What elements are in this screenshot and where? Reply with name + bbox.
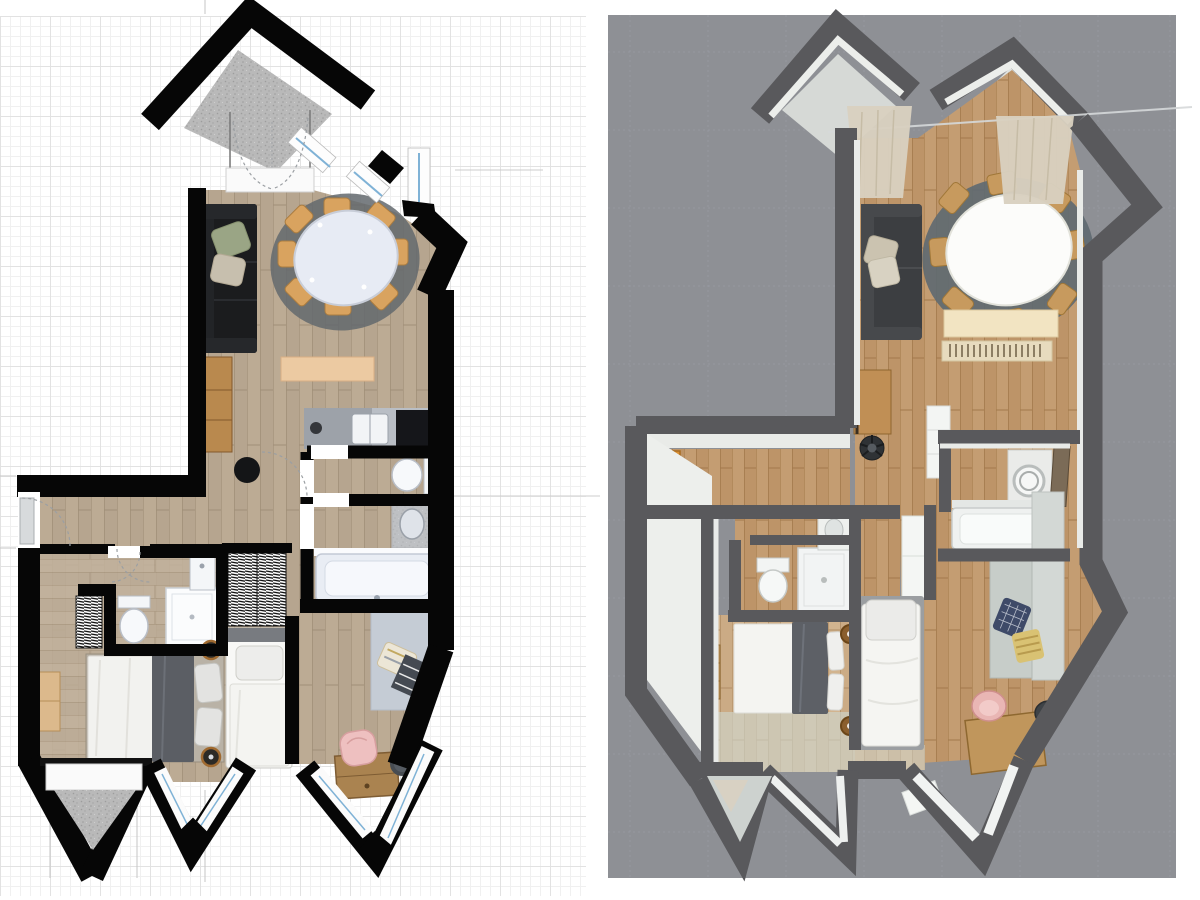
- entry-door-leaf: [20, 498, 34, 544]
- ensuite-toilet-tank: [118, 596, 150, 608]
- sofa-3d-armrest: [861, 327, 922, 340]
- single-bed-pillow: [236, 646, 283, 680]
- dining-chair: [278, 241, 296, 267]
- sideboard-wood: [202, 357, 232, 452]
- floor-plan-2d-drawing: [0, 0, 600, 900]
- bathtub-inner: [325, 561, 429, 596]
- table-setting: [310, 278, 315, 283]
- bath-sink: [400, 509, 424, 539]
- shower-drain: [190, 615, 195, 620]
- toilet-bowl: [392, 459, 422, 491]
- single-bed-headboard: [226, 628, 292, 642]
- double-bed-3d-duvet: [734, 624, 800, 713]
- bar-stool-seat: [868, 444, 877, 453]
- floor-plan-stage: [0, 0, 1200, 900]
- desk-chair-pink: [338, 728, 378, 768]
- table-setting: [362, 285, 367, 290]
- bed-pillow: [194, 707, 222, 747]
- door-gap: [300, 504, 314, 549]
- sofa-pillow-beige: [209, 253, 246, 287]
- desk-chair-pink-inner: [979, 700, 999, 716]
- door-gap: [311, 445, 348, 459]
- bed-pillow: [194, 663, 223, 703]
- ensuite-faucet: [200, 564, 205, 569]
- wall-bed2-office: [285, 616, 299, 764]
- sofa-3d-armrest: [861, 204, 922, 217]
- ensuite-sink: [190, 556, 215, 590]
- table-setting: [368, 230, 373, 235]
- sofa-armrest-top: [202, 204, 257, 219]
- floor-plan-2d-view[interactable]: [0, 0, 600, 900]
- door-gap: [313, 493, 349, 507]
- balcony2-threshold: [46, 764, 142, 790]
- floor-plan-3d-drawing: [600, 0, 1200, 900]
- kitchen-kettle: [310, 422, 322, 434]
- door-gap: [108, 546, 140, 558]
- wall-chunk: [402, 200, 436, 218]
- floor-plan-3d-view[interactable]: [600, 0, 1200, 900]
- bathtub-3d-inner: [960, 514, 1044, 544]
- desk-knob: [365, 784, 370, 789]
- sideboard-cream: [944, 310, 1058, 337]
- bedside-lamp-center: [209, 755, 214, 760]
- double-bed-blanket: [152, 653, 194, 762]
- wallface-corridor-top: [646, 434, 850, 448]
- radiator: [76, 596, 102, 648]
- curtain: [996, 116, 1074, 204]
- toilet-3d-bowl: [759, 570, 787, 602]
- double-bed-3d-blanket: [792, 622, 828, 714]
- shower-3d-drain: [821, 577, 827, 583]
- vbay-window-3d: [840, 776, 844, 842]
- table-setting: [318, 223, 323, 228]
- sofa-pillow-3d: [867, 255, 900, 288]
- single-bed-3d-pillow: [866, 600, 916, 640]
- dining-bench: [281, 357, 374, 381]
- door-gap: [300, 460, 314, 497]
- bed-3d-pillow: [827, 674, 844, 711]
- ensuite-toilet-bowl: [120, 609, 148, 643]
- sofa-armrest-bottom: [202, 338, 257, 353]
- hall-pouf: [234, 457, 260, 483]
- bookshelf-low: [942, 341, 1052, 361]
